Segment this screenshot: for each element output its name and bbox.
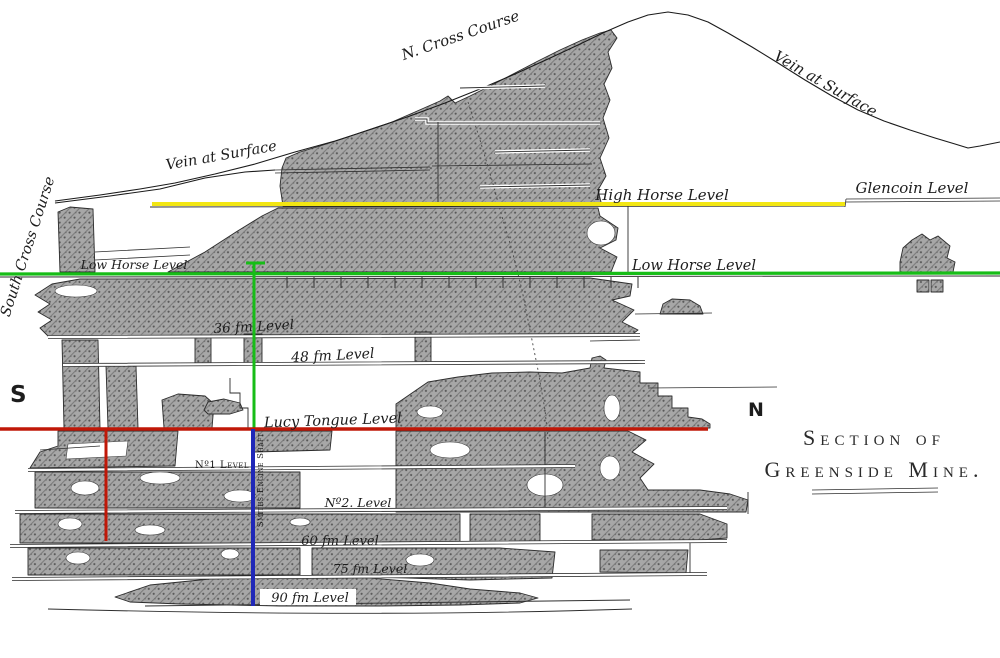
vein-line-left [55,170,275,203]
column-a [62,340,100,428]
fm60-label: 60 fm Level [301,534,378,549]
stope-void [58,518,82,530]
title-underline [812,488,938,494]
shelf-line-36-foot [590,340,640,341]
vein-at-surface-right-label: Vein at Surface [771,47,881,121]
compass-north: N [748,399,764,421]
stope-void [221,549,239,559]
band-lowhorse-36 [35,278,638,336]
white-slab [66,441,128,459]
mass-no2-60-mid [470,514,540,543]
stope-void [66,552,90,564]
stope-void [587,221,615,245]
low-horse-south-label: Low Horse Level [80,257,188,272]
stope-void [417,406,443,418]
stope-void [135,525,165,535]
no1-label: Nº1 Level [195,460,249,471]
mine-section-diagram: South Cross Course N. Cross Course Vein … [0,0,1000,658]
low-horse-black-line [0,276,1000,277]
fm75-label: 75 fm Level [333,561,408,576]
low-horse-north-label: Low Horse Level [631,258,756,274]
smiths-engine-shaft-label: Smiths Engine Shaft [256,433,266,527]
vein-at-surface-left-label: Vein at Surface [165,138,278,173]
mass-no2-60-right [592,514,727,540]
title-line-2: Greenside Mine. [765,457,984,482]
north-outcrop-blob [900,234,955,272]
stope-void [604,395,620,421]
glencoin-line [845,198,1000,207]
north-cross-course-label: N. Cross Course [398,7,522,65]
sublevel-line-east [648,387,777,388]
stope-void [430,442,470,458]
mass-above-lucy-right [396,356,710,428]
blob-above-lucy-b [204,399,243,414]
small-block-1 [917,280,929,292]
band-highhorse-lowhorse [168,208,618,272]
high-horse-black-line [150,206,845,207]
shelf-blob [660,299,703,314]
bottom-boundary-line [48,609,632,613]
high-horse-label: High Horse Level [594,186,729,204]
mountain-mass [280,30,617,206]
stope-void [406,554,434,566]
compass-south: S [10,382,27,408]
rock-masses [20,30,955,606]
title-line-1: Section of [803,425,945,450]
stope-void [140,472,180,484]
fm90-label: 90 fm Level [271,591,348,606]
stope-void [55,285,97,297]
low-horse-green-line [0,273,1000,274]
stope-void [290,518,310,526]
mass-no2-60-left [20,514,460,543]
stope-void [600,456,620,480]
pillar-36-48-a [195,336,211,364]
no2-label: Nº2. Level [324,495,392,510]
mass-60-75-right [600,550,688,573]
stope-void [71,481,99,495]
small-block-2 [931,280,943,292]
title-block: Section of Greenside Mine. [765,425,984,494]
column-b [106,366,138,428]
section-svg: South Cross Course N. Cross Course Vein … [0,0,1000,658]
glencoin-label: Glencoin Level [856,179,969,197]
